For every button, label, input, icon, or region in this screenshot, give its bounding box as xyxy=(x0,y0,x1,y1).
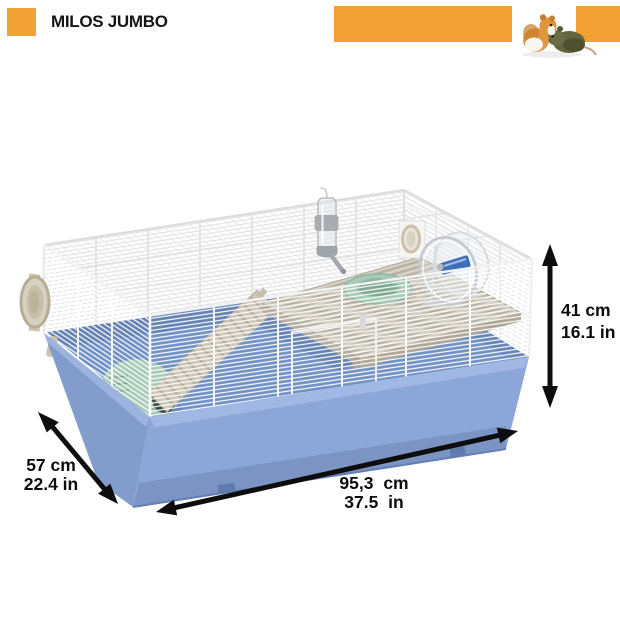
height-cm: 41 cm xyxy=(561,299,615,321)
back-wall-port xyxy=(399,221,425,258)
product-title: MILOS JUMBO xyxy=(51,12,168,32)
product-spec-image: MILOS JUMBO 41 cm 16.1 in 57 cm 22.4 in … xyxy=(0,0,620,620)
dimension-label-width: 95,3 cm 37.5 in xyxy=(322,474,426,512)
cage-spec-graphic xyxy=(0,0,620,620)
height-in: 16.1 in xyxy=(561,321,615,343)
depth-in: 22.4 in xyxy=(5,475,97,494)
dimension-label-depth: 57 cm 22.4 in xyxy=(5,456,97,494)
depth-cm: 57 cm xyxy=(5,456,97,475)
accent-bar-middle xyxy=(334,6,512,42)
width-in: 37.5 in xyxy=(322,493,426,512)
cage-illustration xyxy=(21,188,532,507)
width-cm: 95,3 cm xyxy=(322,474,426,493)
height-arrow xyxy=(542,244,558,408)
accent-square xyxy=(7,8,36,36)
dimension-label-height: 41 cm 16.1 in xyxy=(561,299,615,343)
